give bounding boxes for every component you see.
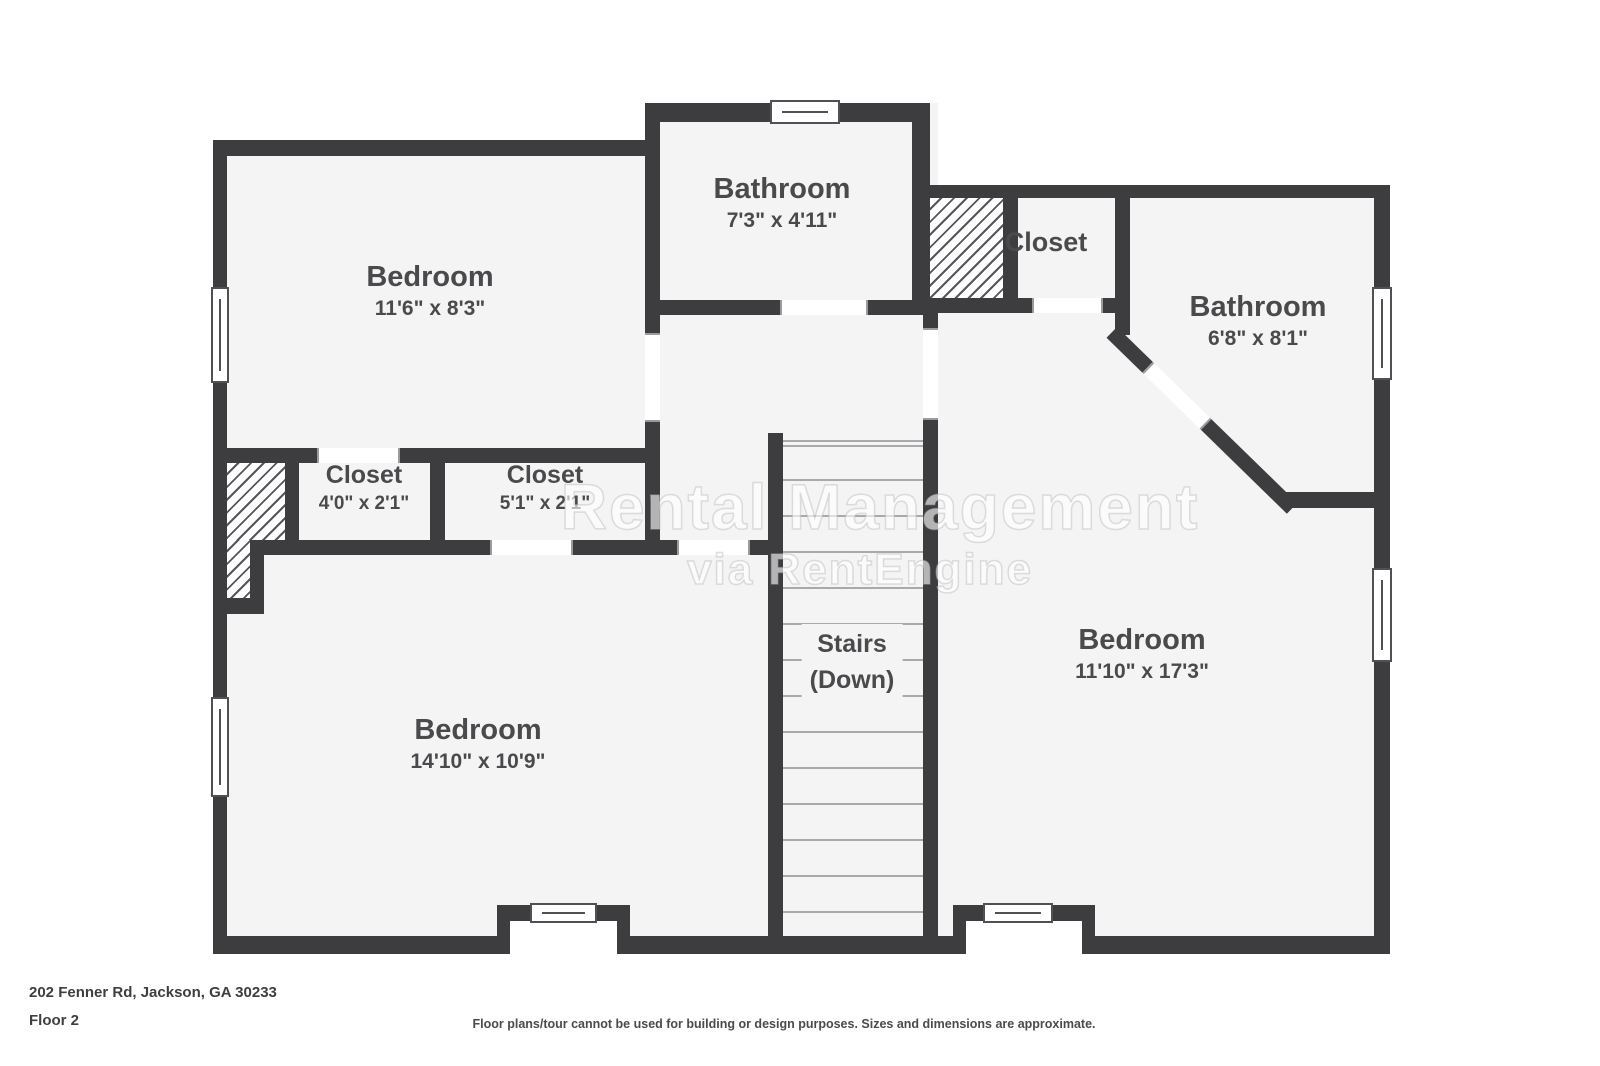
- window-bedroom-tl-left: [211, 287, 229, 383]
- wall-hatch-bottom: [912, 298, 1020, 313]
- wall-closet-row-top: [213, 448, 660, 463]
- wall-bedroom-tl-top: [213, 140, 660, 156]
- room-name: Bathroom: [714, 174, 851, 206]
- wall-outer-top-right: [912, 185, 1390, 198]
- hatch-shaft-top-right: [930, 198, 1003, 298]
- floor-label: Floor 2: [29, 1012, 79, 1029]
- wall-bay-left-jog-a: [497, 905, 510, 952]
- watermark-line2: via RentEngine: [687, 545, 1033, 595]
- wall-chimney-right-lower: [250, 540, 264, 603]
- stair-tread: [783, 839, 923, 841]
- hatch-chimney-lower: [227, 540, 250, 598]
- room-label-bedroom-r: Bedroom 11'10" x 17'3": [1075, 625, 1209, 687]
- window-mullion: [1381, 580, 1383, 650]
- window-bathroom-top: [770, 100, 840, 124]
- room-label-closet-left: Closet 4'0" x 2'1": [319, 462, 409, 517]
- room-label-bedroom-tl: Bedroom 11'6" x 8'3": [366, 262, 493, 324]
- stair-tread: [783, 911, 923, 913]
- stair-tread: [783, 731, 923, 733]
- room-name: Bathroom: [1190, 292, 1327, 324]
- window-mullion: [219, 299, 221, 371]
- stair-edge-line: [783, 440, 923, 442]
- wall-bay-right-jog-a: [953, 905, 966, 952]
- exterior-notch-right: [966, 921, 1082, 954]
- window-bedroom-r-right: [1372, 568, 1392, 662]
- room-dimensions: 11'10" x 17'3": [1075, 657, 1209, 687]
- wall-outer-left: [213, 140, 227, 952]
- window-bay-right: [983, 903, 1053, 923]
- property-address: 202 Fenner Rd, Jackson, GA 30233: [29, 984, 277, 1001]
- window-mullion: [219, 709, 221, 785]
- stair-tread: [783, 767, 923, 769]
- wall-closet-divider: [430, 463, 445, 540]
- window-mullion: [1381, 299, 1383, 368]
- window-bedroom-bl-left: [211, 697, 229, 797]
- window-mullion: [782, 111, 828, 113]
- door-bedroom-tl-hall: [645, 333, 660, 422]
- stair-tread: [783, 803, 923, 805]
- wall-bay-left-jog-b: [617, 905, 630, 952]
- disclaimer-text: Floor plans/tour cannot be used for buil…: [472, 1017, 1095, 1031]
- wall-chimney-cap: [213, 598, 264, 614]
- room-name: Closet: [1005, 228, 1088, 258]
- watermark-line1: Rental Management: [561, 470, 1200, 544]
- room-label-bathroom-top: Bathroom 7'3" x 4'11": [714, 174, 851, 236]
- room-label-bathroom-tr: Bathroom 6'8" x 8'1": [1190, 292, 1327, 354]
- room-dimensions: 7'3" x 4'11": [714, 206, 851, 236]
- room-name: Bedroom: [366, 262, 493, 294]
- room-dimensions: 6'8" x 8'1": [1190, 324, 1327, 354]
- room-dimensions: 4'0" x 2'1": [319, 490, 409, 518]
- room-label-bedroom-bl: Bedroom 14'10" x 10'9": [410, 715, 545, 777]
- exterior-notch-left: [510, 921, 617, 954]
- room-dimensions: 14'10" x 10'9": [410, 747, 545, 777]
- wall-bathroom-tr-bottom: [1283, 492, 1390, 508]
- floor-plan-canvas: Bedroom 11'6" x 8'3" Bathroom 7'3" x 4'1…: [0, 0, 1600, 1066]
- stairs-label-line2: (Down): [810, 662, 895, 698]
- window-bathroom-tr-right: [1372, 287, 1392, 380]
- stairs-label-line1: Stairs: [810, 626, 895, 662]
- wall-closet-row-bottom-1: [250, 540, 490, 555]
- room-label-stairs: Stairs (Down): [802, 624, 903, 701]
- door-bathroom-top: [780, 300, 868, 315]
- door-closet-tr: [1032, 298, 1103, 313]
- wall-bathroom-tr-left: [1115, 185, 1130, 335]
- door-bedroom-r-hall: [923, 328, 938, 420]
- room-dimensions: 11'6" x 8'3": [366, 294, 493, 324]
- window-bay-left: [530, 903, 597, 923]
- wall-bay-right-jog-b: [1082, 905, 1095, 952]
- stair-edge-line: [783, 445, 923, 447]
- window-mullion: [995, 912, 1041, 914]
- hatch-chimney-upper: [227, 463, 285, 540]
- wall-outer-bottom: [213, 936, 1390, 954]
- window-mullion: [542, 912, 585, 914]
- wall-chimney-right-upper: [285, 463, 299, 540]
- wall-bathroom-top-right: [912, 103, 930, 315]
- stair-tread: [783, 875, 923, 877]
- room-name: Closet: [319, 462, 409, 490]
- room-name: Bedroom: [410, 715, 545, 747]
- room-label-closet-tr: Closet: [1005, 228, 1088, 258]
- room-name: Bedroom: [1075, 625, 1209, 657]
